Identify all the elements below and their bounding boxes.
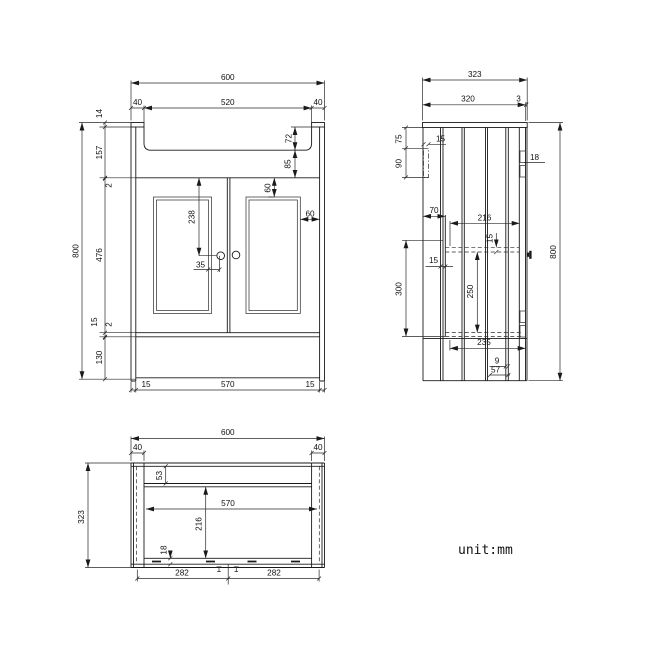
- dim-front-plinth-height: 130: [95, 350, 104, 364]
- dim-plan-overall-depth: 323: [77, 510, 86, 524]
- dim-side-bracket-height: 90: [395, 159, 404, 169]
- dim-side-bracket-drop: 75: [395, 134, 404, 144]
- dim-side-back-gap: 9: [495, 357, 500, 366]
- side-panels: [423, 128, 527, 381]
- front-left-leg-cap: [131, 123, 144, 128]
- dim-side-hinge-plate: 18: [530, 153, 540, 162]
- dim-front-basin-opening: 520: [221, 98, 235, 107]
- dim-front-basin-depth: 72: [285, 134, 294, 144]
- front-dimension-lines: [82, 83, 327, 392]
- right-door-panel-inner: [249, 200, 297, 311]
- technical-drawing-page: 600 520 40 40 14 157 2 476 15 2 130 800 …: [0, 0, 650, 650]
- side-bottom-shelf-hidden: [445, 333, 523, 337]
- dim-front-bottom-rail: 15: [90, 317, 99, 327]
- dim-front-gap-lower: 2: [105, 322, 114, 327]
- plan-view: 600 40 40 53 570 216 18 323 282 282: [77, 428, 327, 585]
- front-extension-lines: [79, 81, 325, 393]
- dim-side-bracket-width: 15: [436, 135, 446, 144]
- dim-front-base-width: 570: [221, 380, 235, 389]
- front-dimension-labels: 600 520 40 40 14 157 2 476 15 2 130 800 …: [72, 73, 323, 389]
- front-right-leg-cap: [312, 123, 325, 128]
- dim-plan-door-right: 282: [267, 569, 281, 578]
- wall-bracket-hidden: [424, 148, 429, 177]
- side-worktop: [423, 123, 528, 128]
- dim-front-panel-top-inset: 60: [264, 183, 273, 193]
- dim-front-panel-side-inset: 60: [305, 210, 315, 219]
- left-door-handle: [217, 252, 225, 260]
- dim-plan-front-rail: 53: [155, 471, 164, 481]
- dim-front-base-inset-left: 15: [141, 380, 151, 389]
- plan-dimension-lines: [88, 439, 327, 581]
- side-door-knob: [527, 251, 532, 259]
- dim-front-door-height: 476: [95, 248, 104, 262]
- dim-plan-overall-width: 600: [221, 428, 235, 437]
- dim-side-shelf-spacing: 250: [466, 284, 475, 298]
- side-dimension-labels: 323 320 3 75 15 90 18 70 216 15 15 300 2…: [395, 70, 559, 375]
- dim-front-leg-right: 40: [313, 98, 323, 107]
- dim-front-handle-offset: 35: [196, 261, 206, 270]
- left-door-panel-inner: [157, 200, 209, 311]
- dim-side-top-depth: 320: [461, 95, 475, 104]
- side-hinges: [520, 151, 526, 337]
- dim-front-leg-left: 40: [133, 98, 143, 107]
- dim-plan-back-gap: 18: [160, 545, 169, 555]
- dim-side-base-depth: 235: [477, 338, 491, 347]
- dim-plan-inner-depth: 216: [195, 517, 204, 531]
- dim-front-handle-drop: 238: [188, 210, 197, 224]
- plan-rails: [144, 484, 312, 559]
- right-door-handle: [232, 251, 240, 259]
- dim-side-opening-height: 300: [395, 282, 404, 296]
- dim-front-top-thickness: 14: [95, 109, 104, 119]
- door-divider: [227, 178, 230, 333]
- dim-side-panel-thickness: 15: [429, 256, 439, 265]
- dim-side-overall-height: 800: [549, 245, 558, 259]
- dim-side-shelf-depth: 216: [478, 214, 492, 223]
- dim-front-apron-height: 157: [95, 145, 104, 159]
- right-door-panel-outer: [246, 197, 300, 314]
- front-view: 600 520 40 40 14 157 2 476 15 2 130 800 …: [72, 73, 327, 393]
- front-view-outline: [131, 123, 325, 382]
- vanity-dimension-drawing: 600 520 40 40 14 157 2 476 15 2 130 800 …: [0, 0, 650, 650]
- dim-plan-leg-left: 40: [133, 443, 143, 452]
- side-view: 323 320 3 75 15 90 18 70 216 15 15 300 2…: [395, 70, 564, 381]
- plan-leg-posts: [144, 463, 312, 568]
- plan-extension-lines: [85, 437, 325, 585]
- dim-plan-door-left: 282: [175, 569, 189, 578]
- dim-plan-inner-width: 570: [221, 499, 235, 508]
- side-dimension-lines: [404, 80, 560, 381]
- dim-front-overall-height: 800: [72, 244, 81, 258]
- dim-front-overall-width: 600: [221, 73, 235, 82]
- dim-front-basin-clearance: 85: [284, 159, 293, 169]
- dim-front-gap-upper: 2: [105, 183, 114, 188]
- side-bottom-lines: [423, 339, 527, 381]
- dim-side-overall-depth: 323: [468, 70, 482, 79]
- dim-side-top-overhang: 3: [516, 95, 521, 104]
- dim-plan-leg-right: 40: [313, 443, 323, 452]
- left-door-panel-outer: [154, 197, 212, 314]
- side-extension-lines: [402, 78, 563, 381]
- plan-dimension-labels: 600 40 40 53 570 216 18 323 282 282: [77, 428, 323, 578]
- dim-side-back-inset: 57: [491, 366, 501, 375]
- dim-side-front-clearance: 70: [429, 206, 439, 215]
- dim-front-base-inset-right: 15: [305, 380, 315, 389]
- dim-side-shelf-thickness: 15: [486, 234, 495, 244]
- unit-note: unit:mm: [458, 543, 513, 558]
